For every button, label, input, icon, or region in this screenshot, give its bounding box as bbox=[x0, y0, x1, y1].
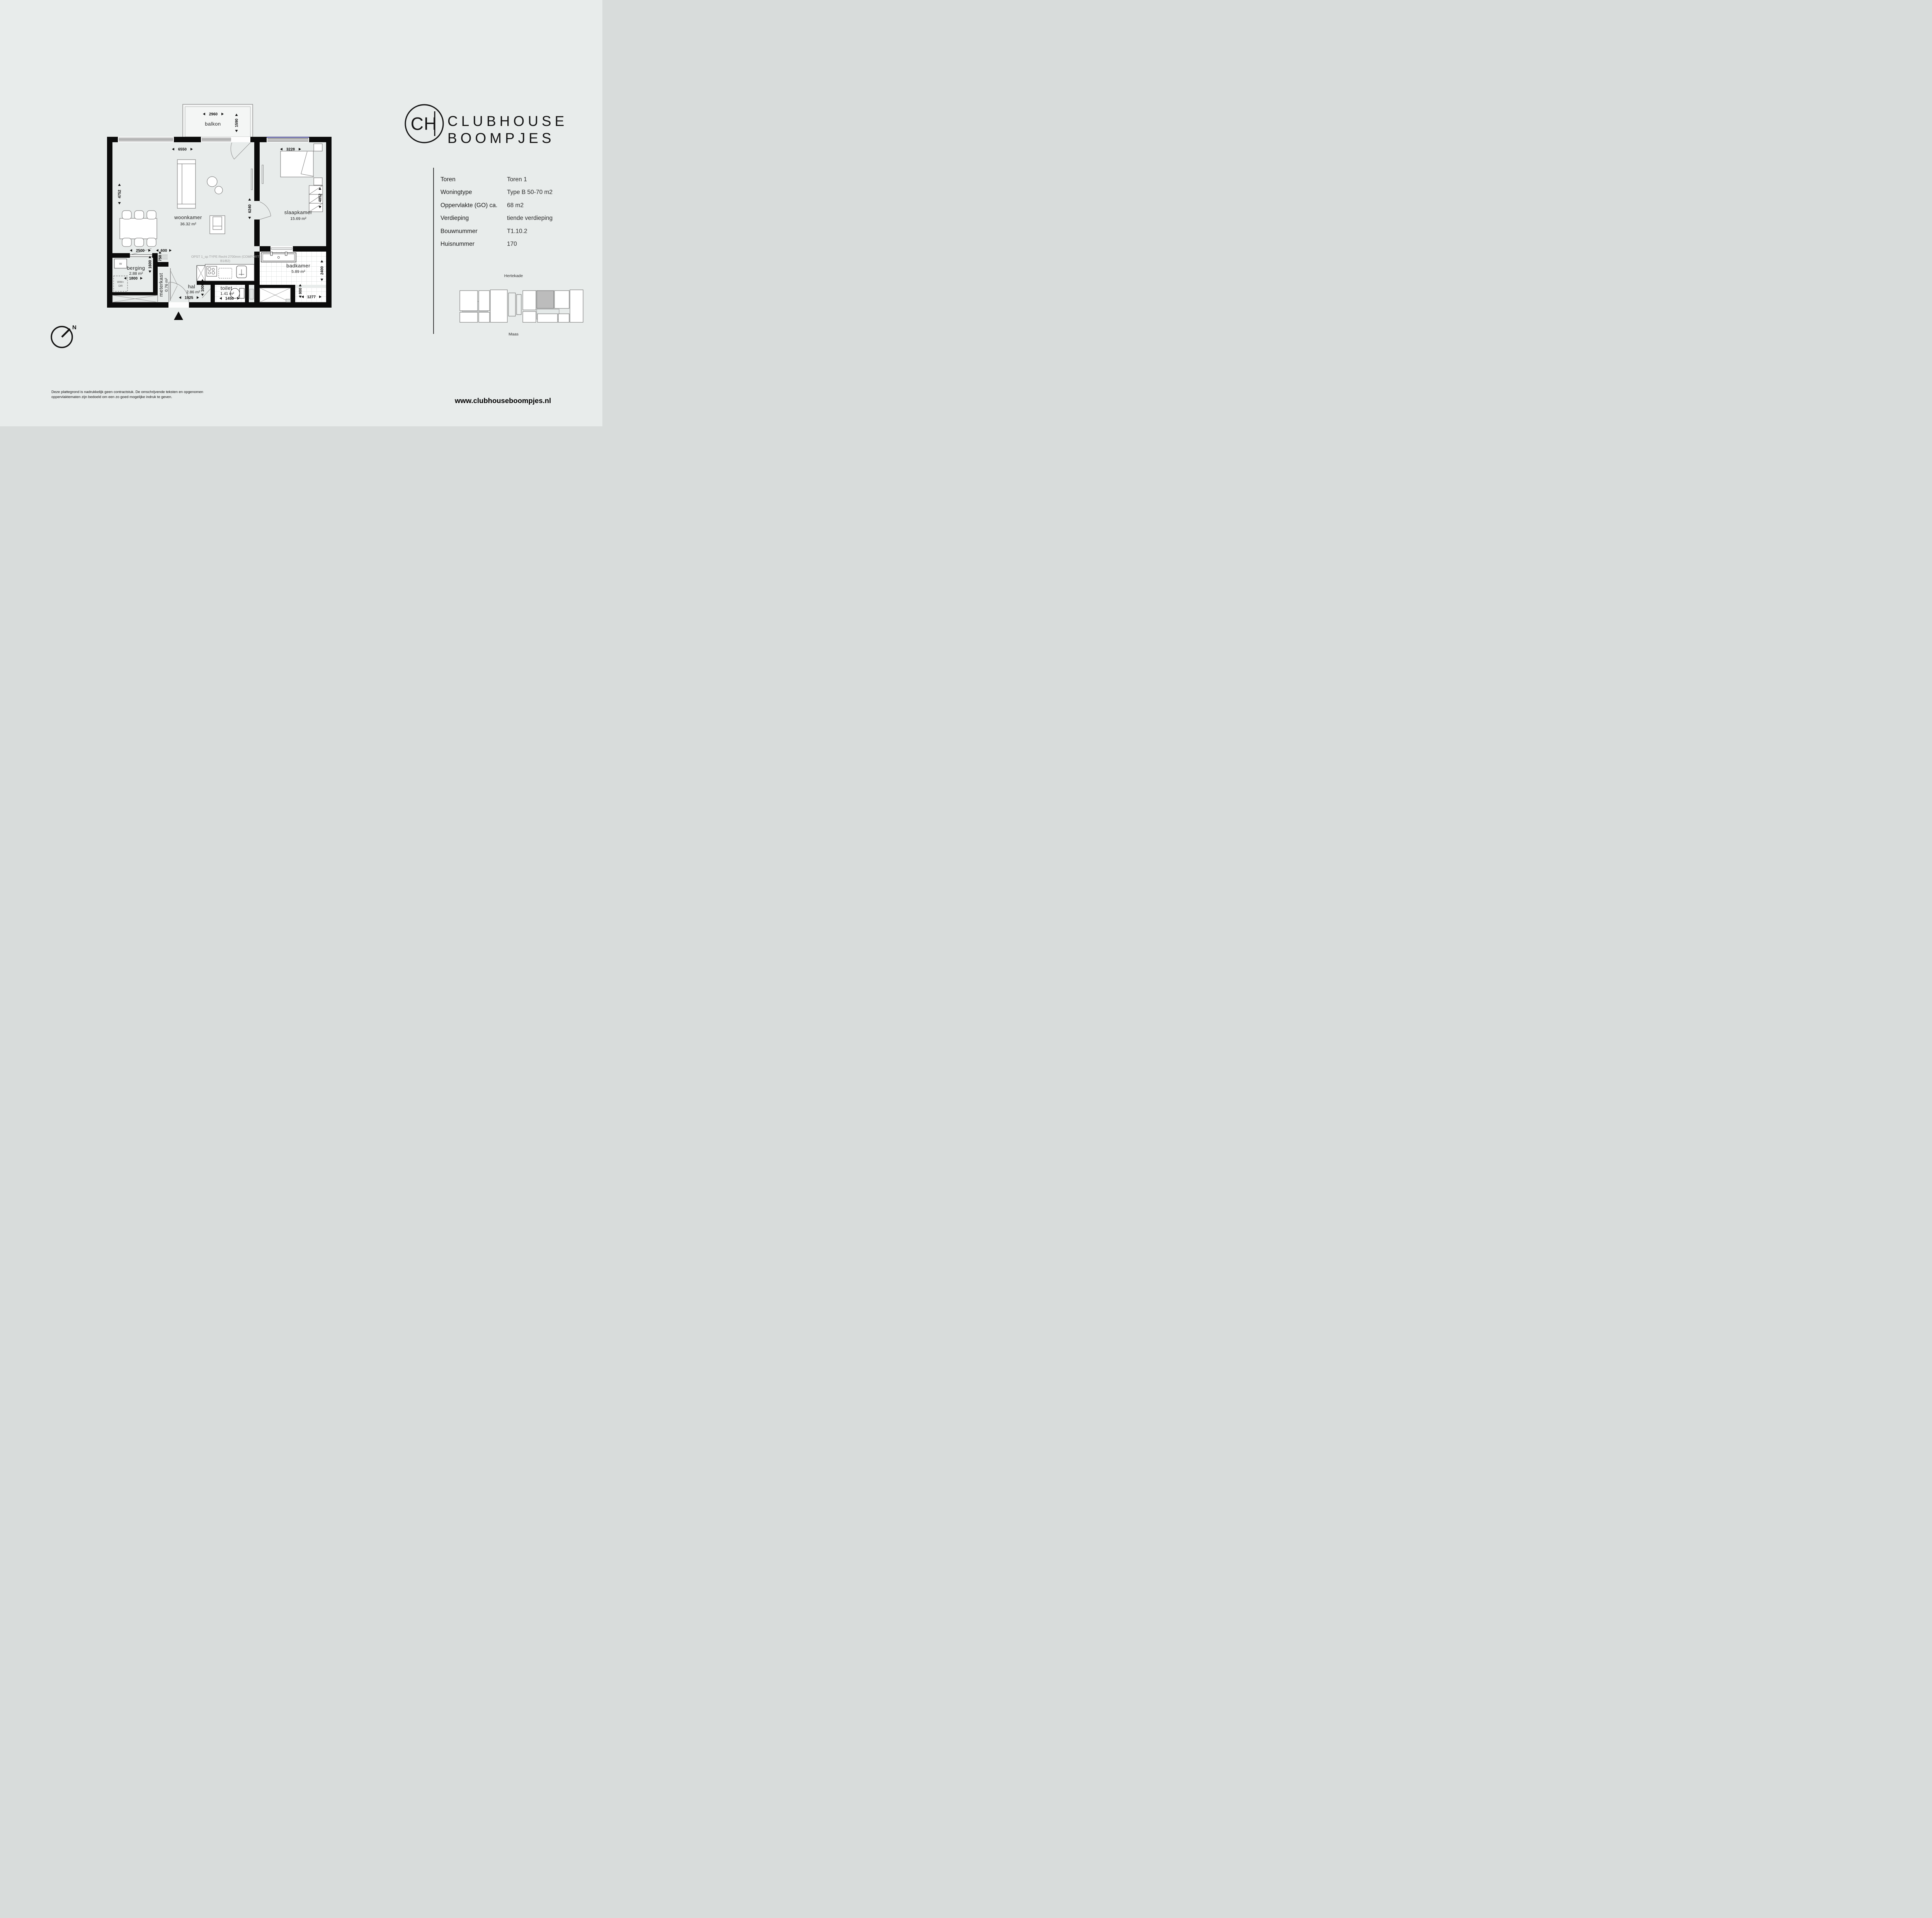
info-row-huisnummer: Huisnummer 170 bbox=[440, 241, 553, 254]
dim-woonkamer-depth: 4752 bbox=[118, 184, 122, 204]
svg-text:1590: 1590 bbox=[235, 118, 239, 127]
meterkast-label: meterkast bbox=[158, 273, 164, 297]
dim-berging-door-width: 2500 bbox=[130, 249, 151, 253]
logo-monogram: CH bbox=[411, 114, 437, 134]
info-row-verdieping: Verdieping tiende verdieping bbox=[440, 215, 553, 228]
disclaimer-line1: Deze plattegrond is nadrukkelijk geen co… bbox=[51, 390, 203, 395]
woonkamer-label: woonkamer bbox=[174, 214, 202, 220]
info-value: 68 m2 bbox=[507, 202, 524, 209]
disclaimer: Deze plattegrond is nadrukkelijk geen co… bbox=[51, 390, 203, 400]
kitchen: OPST 1_sp TYPE Recht 2700mm (COMFORT B1/… bbox=[191, 255, 259, 281]
svg-text:1000: 1000 bbox=[201, 283, 205, 292]
info-label: Toren bbox=[440, 176, 507, 183]
badkamer-area: 5.89 m² bbox=[291, 269, 305, 274]
svg-text:4752: 4752 bbox=[118, 189, 122, 198]
site-map: Hertekade Maas bbox=[460, 274, 583, 337]
svg-text:1925: 1925 bbox=[185, 296, 194, 300]
info-label: Oppervlakte (GO) ca. bbox=[440, 202, 507, 209]
bed bbox=[281, 151, 313, 177]
hal-label: hal bbox=[188, 284, 196, 289]
info-panel: Toren Toren 1 Woningtype Type B 50-70 m2… bbox=[440, 176, 553, 254]
svg-text:2960: 2960 bbox=[209, 112, 218, 117]
tower-left bbox=[460, 290, 507, 322]
window-bedroom bbox=[267, 137, 309, 142]
svg-text:6240: 6240 bbox=[248, 204, 252, 213]
chair bbox=[134, 238, 144, 247]
clubhouse-logo-icon: CH bbox=[404, 103, 447, 145]
wm-dr-label: DR bbox=[119, 284, 123, 288]
sofa bbox=[177, 160, 196, 208]
svg-text:1450: 1450 bbox=[225, 297, 234, 301]
balcony: balkon 2960 1590 bbox=[183, 104, 253, 138]
info-panel-divider bbox=[433, 168, 434, 334]
dim-berging-depth: 1600 bbox=[148, 256, 153, 273]
toilet-label: toilet bbox=[221, 285, 232, 291]
side-table bbox=[215, 186, 223, 194]
toilet-area: 1.41 m² bbox=[220, 291, 234, 296]
info-label: Bouwnummer bbox=[440, 228, 507, 235]
bedroom-furniture bbox=[262, 144, 323, 212]
info-value: tiende verdieping bbox=[507, 215, 553, 222]
chair bbox=[147, 238, 156, 247]
entrance-opening bbox=[168, 302, 189, 308]
radiator bbox=[251, 169, 253, 190]
wm-dr-label: WM+ bbox=[117, 280, 124, 284]
svg-text:4852: 4852 bbox=[318, 193, 323, 202]
street-label-top: Hertekade bbox=[504, 274, 523, 278]
slaapkamer-area: 15.69 m² bbox=[290, 216, 306, 221]
info-row-oppervlakte: Oppervlakte (GO) ca. 68 m2 bbox=[440, 202, 553, 215]
radiator bbox=[262, 165, 264, 184]
info-row-woningtype: Woningtype Type B 50-70 m2 bbox=[440, 189, 553, 202]
kitchen-note-line2: B1/B2) bbox=[220, 259, 230, 263]
info-label: Verdieping bbox=[440, 215, 507, 222]
bathroom-shaft bbox=[260, 288, 291, 302]
info-value: Type B 50-70 m2 bbox=[507, 189, 553, 196]
slaapkamer-label: slaapkamer bbox=[284, 209, 312, 215]
svg-text:2400: 2400 bbox=[320, 266, 325, 275]
highlighted-unit bbox=[537, 291, 554, 308]
floorplan-sheet: balkon 2960 1590 bbox=[0, 0, 602, 426]
woonkamer-area: 36.32 m² bbox=[180, 222, 196, 226]
hal-area: 2.86 m² bbox=[186, 290, 200, 294]
bathtub bbox=[261, 253, 296, 262]
brand-wordmark: CLUBHOUSE BOOMPJES bbox=[447, 113, 568, 147]
washer-label: W bbox=[119, 262, 122, 265]
dim-living-right-depth: 6240 bbox=[248, 198, 252, 219]
nightstand bbox=[314, 178, 322, 185]
info-label: Huisnummer bbox=[440, 241, 507, 248]
brand-line2: BOOMPJES bbox=[447, 130, 568, 147]
storage-appliances: W WM+ DR bbox=[114, 259, 128, 291]
meterkast-area: 0.76 m² bbox=[164, 278, 169, 292]
window-balcony-door bbox=[201, 137, 250, 142]
balcony-label: balkon bbox=[205, 121, 221, 127]
svg-text:3228: 3228 bbox=[286, 148, 295, 152]
svg-text:1800: 1800 bbox=[129, 277, 138, 281]
svg-text:2500: 2500 bbox=[136, 249, 145, 253]
street-label-bottom: Maas bbox=[509, 332, 519, 337]
tower-right bbox=[523, 290, 583, 322]
compass-icon: N bbox=[51, 324, 77, 347]
chair bbox=[134, 211, 144, 219]
chair bbox=[147, 211, 156, 219]
info-value: 170 bbox=[507, 241, 517, 248]
chair bbox=[122, 211, 131, 219]
side-table bbox=[207, 177, 217, 187]
livingroom-furniture bbox=[120, 160, 253, 247]
berging-area: 2.88 m² bbox=[129, 271, 143, 276]
svg-text:750: 750 bbox=[158, 255, 163, 261]
svg-text:900: 900 bbox=[299, 288, 303, 294]
kitchen-note-line1: OPST 1_sp TYPE Recht 2700mm (COMFORT bbox=[191, 255, 259, 259]
nightstand bbox=[314, 144, 322, 151]
svg-text:600: 600 bbox=[161, 249, 167, 253]
sink-icon bbox=[236, 266, 247, 278]
brand-line1: CLUBHOUSE bbox=[447, 113, 568, 130]
dim-woonkamer-width: 6550 bbox=[172, 148, 193, 152]
disclaimer-line2: oppervlaktematen zijn bedoeld om een zo … bbox=[51, 395, 203, 400]
svg-text:1277: 1277 bbox=[307, 295, 316, 300]
dim-kast-width: 600 bbox=[156, 249, 172, 253]
chair bbox=[122, 238, 131, 247]
website-url: www.clubhouseboompjes.nl bbox=[455, 397, 551, 405]
connector-buildings bbox=[509, 293, 521, 316]
svg-text:1600: 1600 bbox=[148, 260, 153, 269]
svg-text:6550: 6550 bbox=[178, 148, 187, 152]
dim-berging-width: 1800 bbox=[124, 277, 143, 281]
compass-north-label: N bbox=[72, 324, 77, 331]
info-value: T1.10.2 bbox=[507, 228, 527, 235]
info-value: Toren 1 bbox=[507, 176, 527, 183]
info-row-toren: Toren Toren 1 bbox=[440, 176, 553, 189]
info-label: Woningtype bbox=[440, 189, 507, 196]
window-livingroom bbox=[118, 137, 174, 142]
info-row-bouwnummer: Bouwnummer T1.10.2 bbox=[440, 228, 553, 241]
berging-label: berging bbox=[127, 265, 145, 271]
dining-table bbox=[120, 218, 157, 239]
badkamer-label: badkamer bbox=[286, 263, 310, 269]
entrance-marker-icon bbox=[174, 311, 183, 320]
dim-hal-width: 1925 bbox=[179, 296, 199, 300]
